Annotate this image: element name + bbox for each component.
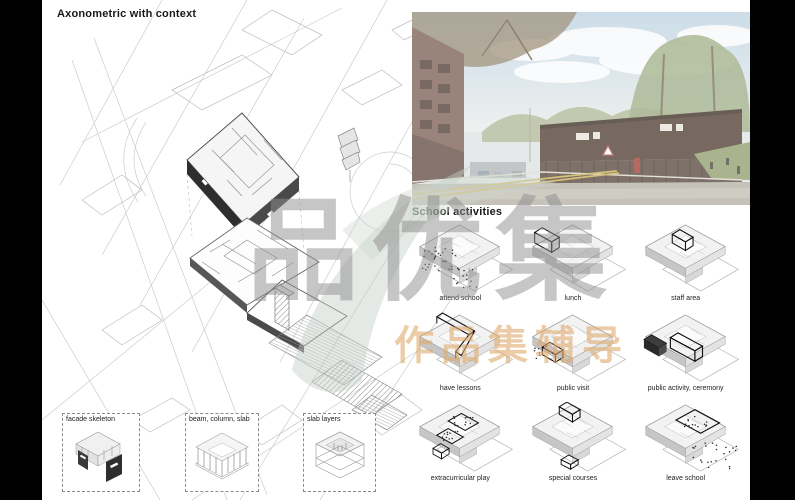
activity-label: have lessons bbox=[404, 385, 517, 392]
activity-public-activity-ceremony: public activity, ceremony bbox=[637, 312, 750, 402]
attend-school-axon-icon bbox=[416, 222, 520, 294]
school-activities-grid: attend school lunch staff area have less… bbox=[412, 222, 750, 492]
activity-label: leave school bbox=[629, 475, 742, 482]
facade-skeleton-icon bbox=[72, 430, 130, 482]
school-activities-section-title: School activities bbox=[412, 206, 502, 218]
activity-label: public activity, ceremony bbox=[629, 385, 742, 392]
have-lessons-axon-icon bbox=[416, 312, 520, 384]
public-activity-axon-icon bbox=[642, 312, 746, 384]
activity-label: special courses bbox=[517, 475, 630, 482]
activity-label: extracurricular play bbox=[404, 475, 517, 482]
activity-leave-school: leave school bbox=[637, 402, 750, 492]
activity-special-courses: special courses bbox=[525, 402, 638, 492]
staff-area-axon-icon bbox=[642, 222, 746, 294]
legend-box-slab-layers: slab layers bbox=[303, 413, 376, 492]
activity-staff-area: staff area bbox=[637, 222, 750, 312]
activity-public-visit: public visit bbox=[525, 312, 638, 402]
activity-lunch: lunch bbox=[525, 222, 638, 312]
extracurricular-axon-icon bbox=[416, 402, 520, 474]
legend-box-facade-skeleton: facade skeleton bbox=[62, 413, 140, 492]
activity-extracurricular-play: extracurricular play bbox=[412, 402, 525, 492]
legend-box-beam-column-slab: beam, column, slab bbox=[185, 413, 259, 492]
legend-label: slab layers bbox=[307, 416, 340, 423]
slab-layers-icon bbox=[310, 430, 370, 482]
activity-attend-school: attend school bbox=[412, 222, 525, 312]
activity-have-lessons: have lessons bbox=[412, 312, 525, 402]
board-canvas: Axonometric with context bbox=[42, 0, 750, 500]
special-courses-axon-icon bbox=[529, 402, 633, 474]
legend-label: facade skeleton bbox=[66, 416, 115, 423]
leave-school-axon-icon bbox=[642, 402, 746, 474]
activity-label: lunch bbox=[517, 295, 630, 302]
activity-label: attend school bbox=[404, 295, 517, 302]
activity-label: public visit bbox=[517, 385, 630, 392]
tree-marker-icon bbox=[338, 128, 360, 182]
beam-column-slab-icon bbox=[192, 431, 252, 481]
legend-label: beam, column, slab bbox=[189, 416, 250, 423]
upper-floor-slab bbox=[187, 113, 299, 238]
public-visit-axon-icon bbox=[529, 312, 633, 384]
activity-label: staff area bbox=[629, 295, 742, 302]
lunch-axon-icon bbox=[529, 222, 633, 294]
site-photo bbox=[412, 12, 750, 205]
